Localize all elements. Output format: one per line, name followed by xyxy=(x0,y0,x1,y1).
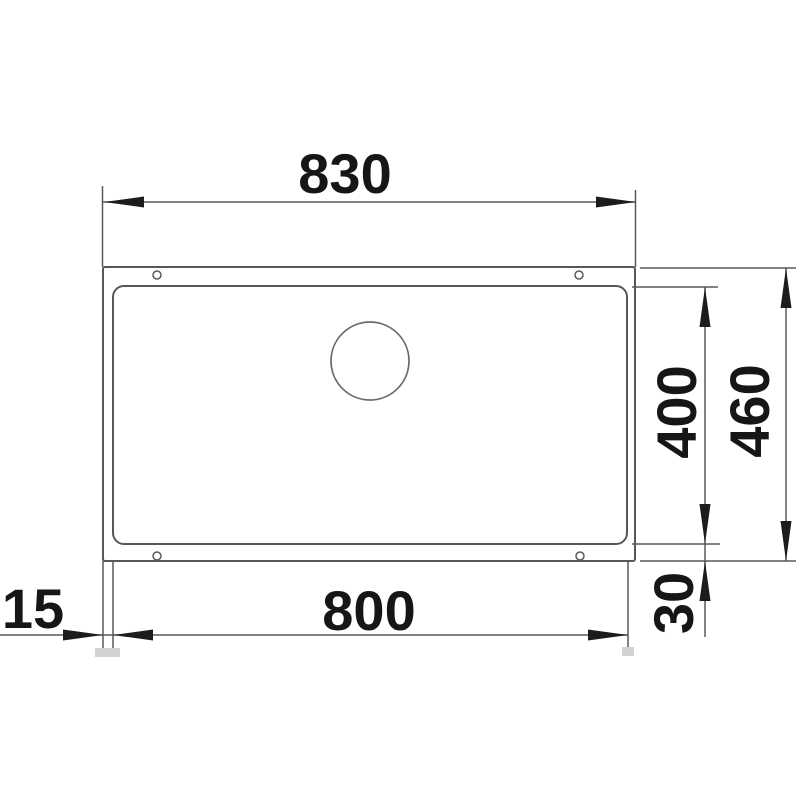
mounting-hole-bottom-right xyxy=(576,552,584,560)
arrowhead-right xyxy=(596,197,636,208)
arrowhead-left-offset xyxy=(63,630,103,641)
arrowhead-bowl-depth-bottom xyxy=(700,504,711,544)
drawing-stage: 830 400 30 460 xyxy=(0,0,800,800)
mounting-hole-top-left xyxy=(153,271,161,279)
scan-artifact-left xyxy=(95,648,120,657)
arrowhead-bowl-depth-top xyxy=(700,287,711,327)
dimension-bottom: 15 800 xyxy=(0,561,634,657)
arrowhead-overall-depth-bottom xyxy=(781,521,792,561)
dim-label-bottom-offset: 30 xyxy=(642,572,705,634)
dim-label-overall-width: 830 xyxy=(298,142,391,205)
mounting-hole-bottom-left xyxy=(153,552,161,560)
dim-label-overall-depth: 460 xyxy=(718,364,781,457)
arrowhead-left xyxy=(104,197,144,208)
scan-artifact-right xyxy=(622,647,634,656)
arrowhead-bowl-width-left xyxy=(113,630,153,641)
drain-hole xyxy=(331,322,409,400)
dim-label-bowl-width: 800 xyxy=(322,579,415,642)
technical-drawing-canvas: 830 400 30 460 xyxy=(0,0,800,800)
sink-rim-outline xyxy=(103,267,635,561)
bowl-outline xyxy=(113,286,627,544)
dimension-overall-width: 830 xyxy=(103,142,637,267)
arrowhead-bowl-width-right xyxy=(588,630,628,641)
mounting-hole-top-right xyxy=(575,271,583,279)
arrowhead-overall-depth-top xyxy=(781,268,792,308)
dimension-right-side: 400 30 460 xyxy=(632,268,796,637)
sink-body xyxy=(103,267,635,561)
dim-label-bowl-depth: 400 xyxy=(645,365,708,458)
dim-label-left-offset: 15 xyxy=(2,577,64,640)
